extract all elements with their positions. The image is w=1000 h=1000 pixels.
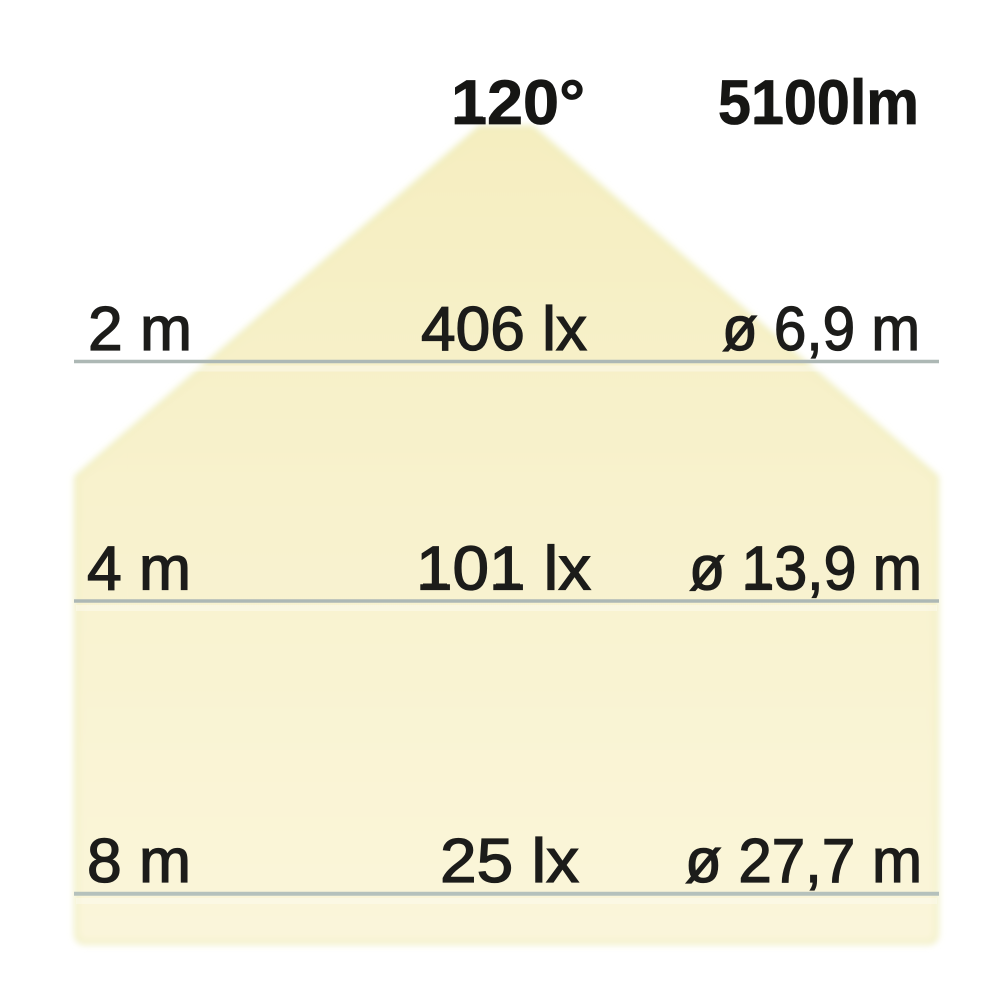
svg-text:ø 27,7 m: ø 27,7 m	[685, 827, 922, 896]
svg-text:2 m: 2 m	[88, 295, 192, 364]
svg-text:8 m: 8 m	[87, 827, 191, 896]
svg-text:4 m: 4 m	[87, 535, 191, 604]
svg-text:25 lx: 25 lx	[440, 827, 579, 896]
svg-text:101 lx: 101 lx	[416, 535, 591, 604]
svg-text:5100lm: 5100lm	[718, 68, 919, 138]
svg-text:ø 6,9 m: ø 6,9 m	[722, 295, 920, 364]
svg-text:406 lx: 406 lx	[421, 295, 587, 364]
svg-text:ø 13,9 m: ø 13,9 m	[689, 535, 922, 604]
svg-text:120°: 120°	[451, 68, 585, 138]
